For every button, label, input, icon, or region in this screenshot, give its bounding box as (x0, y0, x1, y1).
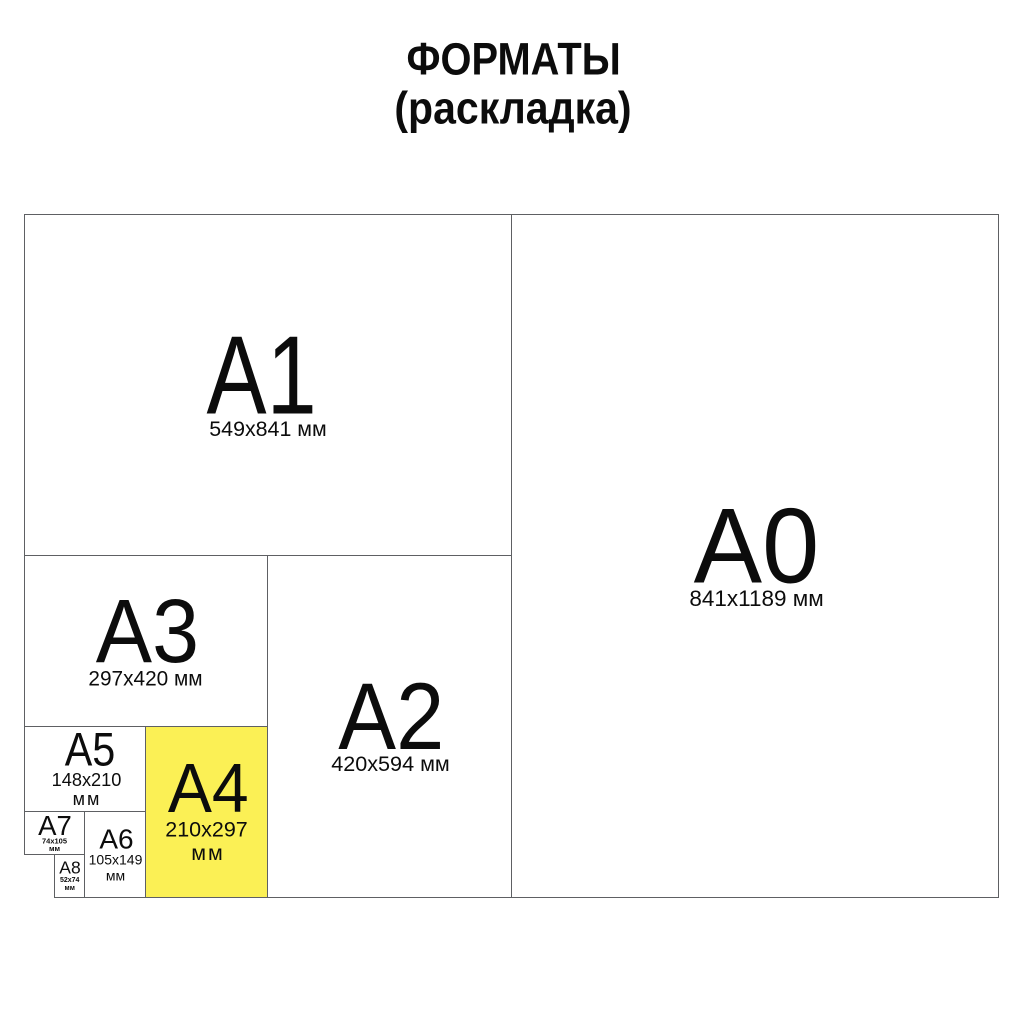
svg-text:210x297: 210x297 (165, 818, 248, 842)
svg-text:549x841 мм: 549x841 мм (209, 417, 326, 441)
svg-text:841x1189 мм: 841x1189 мм (689, 586, 823, 611)
svg-text:A6: A6 (99, 824, 133, 855)
svg-text:52x74: 52x74 (60, 877, 80, 884)
svg-text:ФОРМАТЫ: ФОРМАТЫ (407, 34, 621, 85)
svg-text:мм: мм (106, 868, 125, 884)
svg-text:297x420 мм: 297x420 мм (88, 668, 202, 691)
svg-text:A8: A8 (59, 858, 80, 878)
svg-text:A5: A5 (65, 724, 116, 777)
svg-text:мм: мм (73, 789, 102, 809)
svg-text:мм: мм (65, 885, 75, 892)
svg-text:105x149: 105x149 (89, 852, 143, 868)
svg-text:148x210: 148x210 (52, 770, 122, 790)
svg-text:мм: мм (49, 844, 61, 853)
svg-text:A4: A4 (168, 749, 249, 827)
svg-text:(раскладка): (раскладка) (394, 83, 631, 134)
svg-text:420x594 мм: 420x594 мм (331, 751, 450, 776)
svg-text:мм: мм (191, 841, 225, 865)
